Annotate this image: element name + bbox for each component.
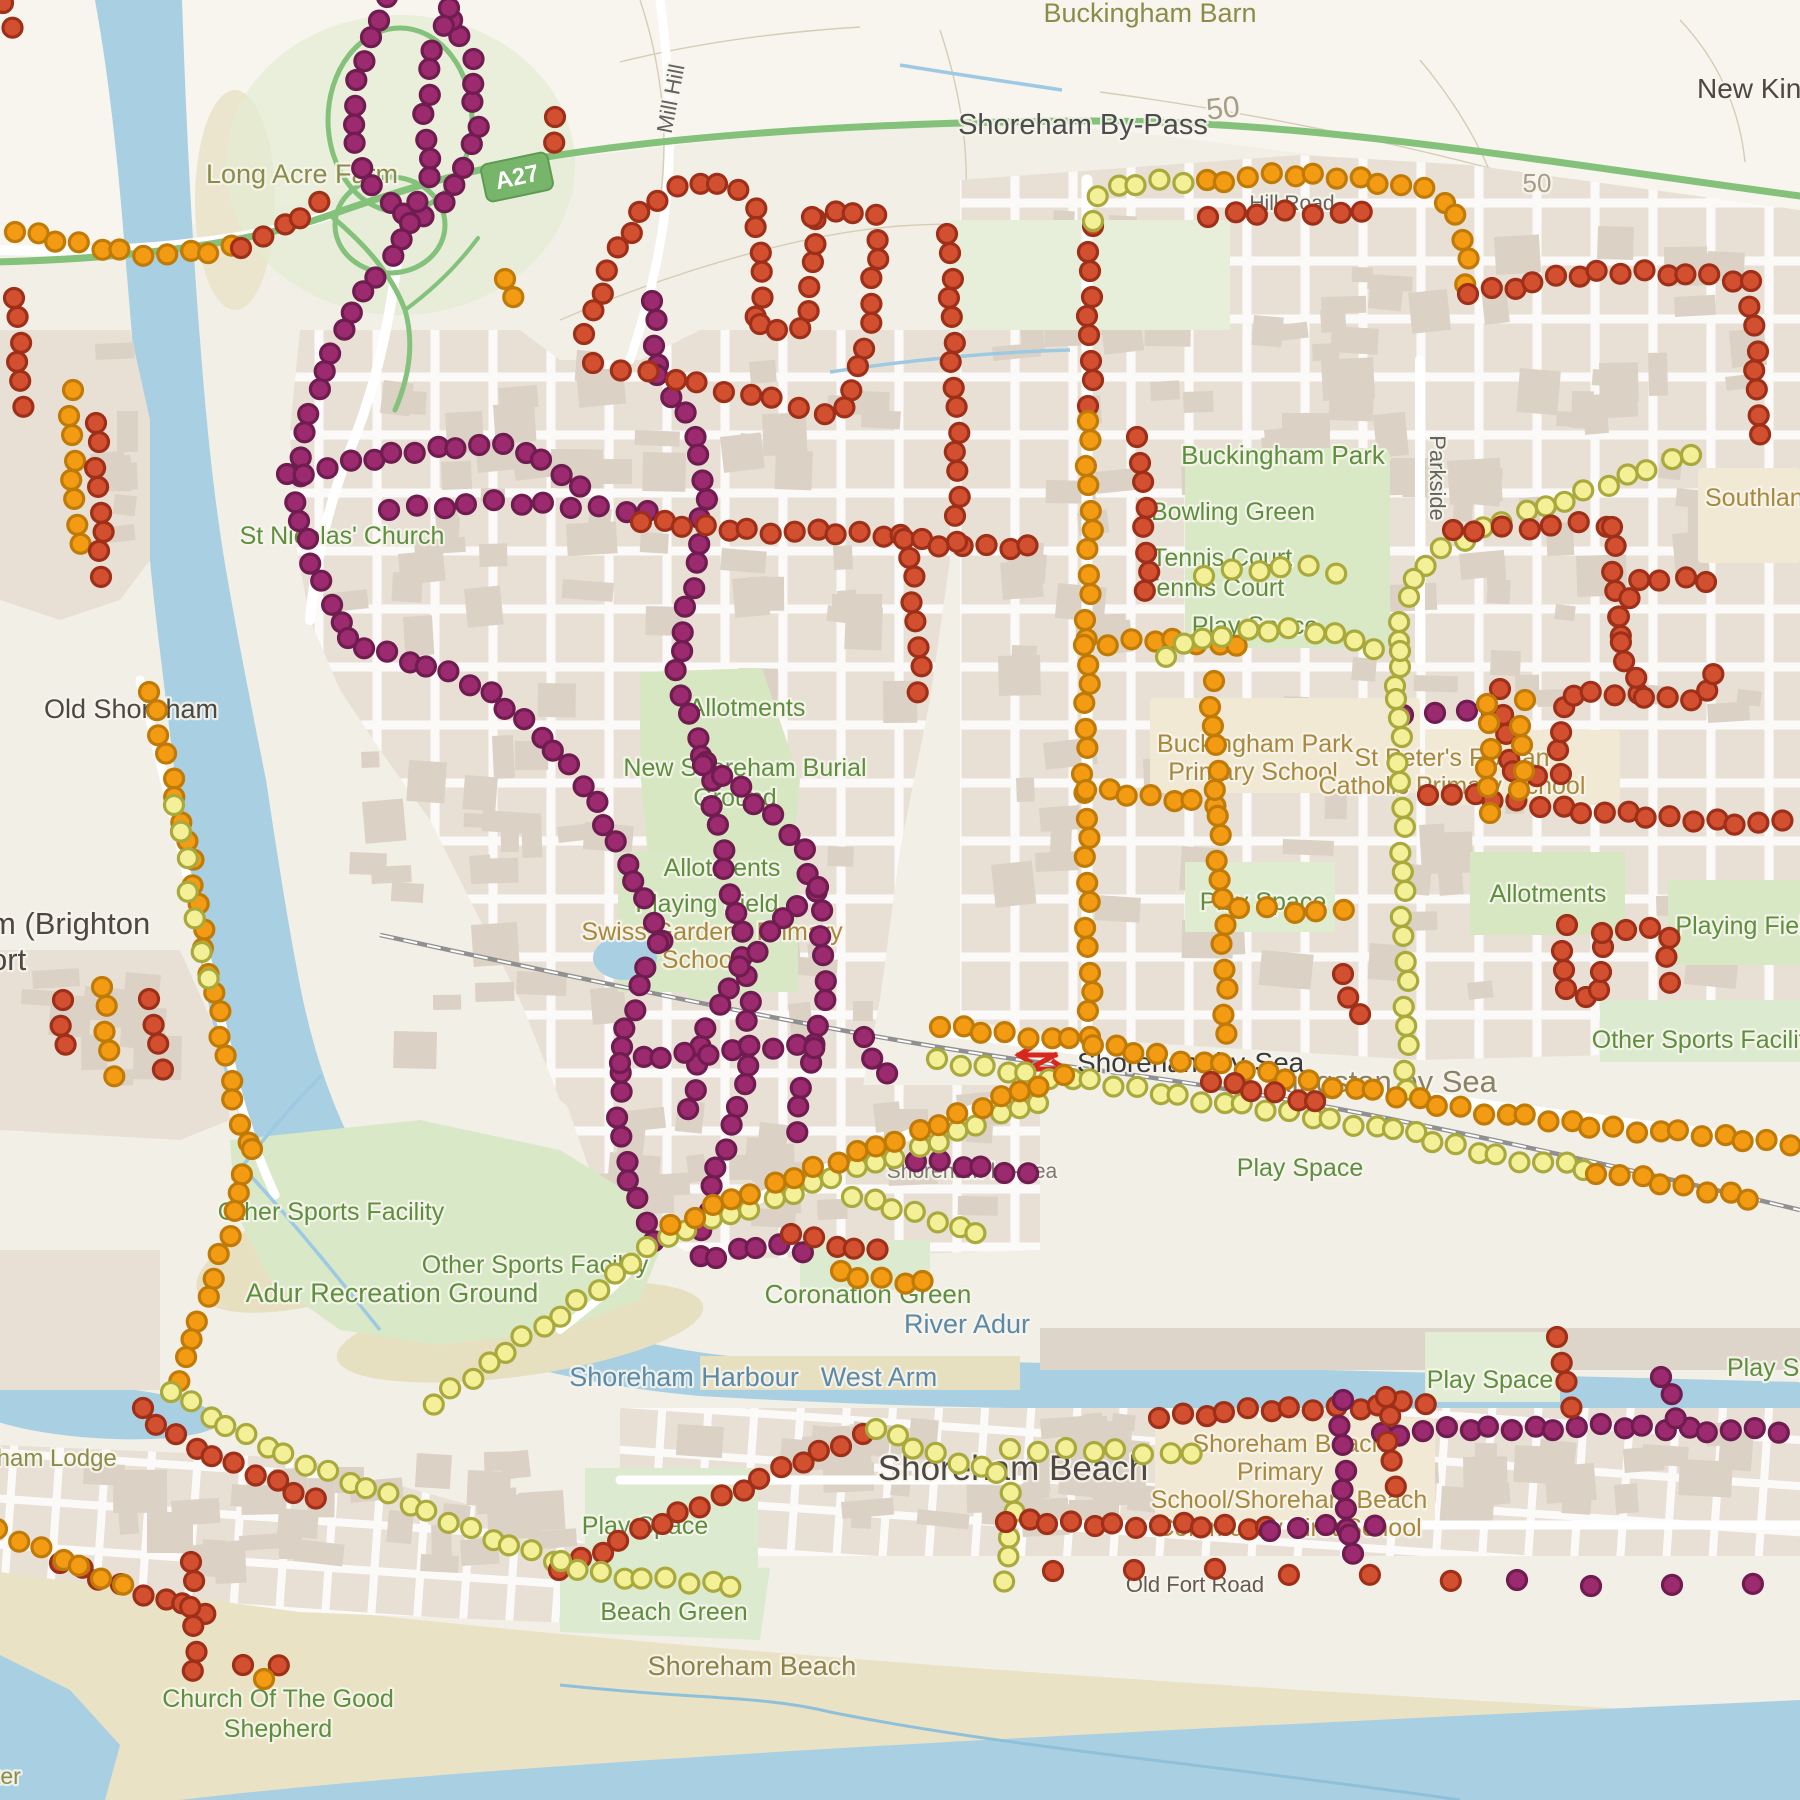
building	[1150, 380, 1180, 401]
survey-dot-r	[284, 1484, 303, 1503]
survey-dot-y	[1400, 587, 1419, 606]
survey-dot-o	[66, 451, 85, 470]
survey-dot-y	[1326, 624, 1345, 643]
survey-dot-y	[1057, 1439, 1076, 1458]
survey-dot-o	[1334, 900, 1353, 919]
survey-dot-y	[843, 1188, 862, 1207]
survey-dot-p	[346, 96, 365, 115]
survey-dot-y	[1393, 798, 1412, 817]
survey-dot-o	[1327, 169, 1346, 188]
survey-dot-o	[204, 1269, 223, 1288]
survey-dot-r	[246, 1466, 265, 1485]
survey-dot-o	[1148, 1044, 1167, 1063]
survey-dot-r	[1150, 1409, 1169, 1428]
survey-dot-r	[803, 253, 822, 272]
survey-dot-r	[672, 517, 691, 536]
survey-dot-y	[1431, 539, 1450, 558]
survey-dot-o	[221, 1227, 240, 1246]
survey-dot-p	[345, 115, 364, 134]
survey-dot-y	[1388, 754, 1407, 773]
building	[676, 1424, 724, 1458]
survey-dot-y	[1192, 1093, 1211, 1112]
survey-dot-y	[1080, 1070, 1099, 1089]
survey-dot-r	[1275, 201, 1294, 220]
survey-dot-r	[1751, 425, 1770, 444]
survey-dot-r	[746, 218, 765, 237]
map-label-green: Buckingham Park	[1181, 440, 1386, 470]
survey-dot-o	[177, 1348, 196, 1367]
building	[1459, 550, 1506, 580]
survey-dot-o	[211, 1002, 230, 1021]
survey-dot-p	[637, 1213, 656, 1232]
building	[744, 1137, 770, 1175]
survey-dot-r	[1676, 265, 1695, 284]
survey-dot-o	[1587, 1165, 1606, 1184]
survey-dot-r	[712, 1486, 731, 1505]
survey-dot-r	[1062, 1512, 1081, 1531]
survey-dot-p	[574, 777, 593, 796]
survey-dot-p	[611, 1054, 630, 1073]
survey-dot-r	[0, 0, 13, 13]
survey-dot-o	[1299, 1071, 1318, 1090]
survey-dot-o	[1387, 1088, 1406, 1107]
survey-dot-p	[686, 428, 705, 447]
survey-dot-r	[1303, 205, 1322, 224]
survey-dot-r	[92, 503, 111, 522]
survey-dot-r	[909, 638, 928, 657]
survey-dot-r	[92, 567, 111, 586]
survey-dot-y	[1387, 690, 1406, 709]
survey-dot-p	[930, 1151, 949, 1170]
survey-dot-r	[90, 541, 109, 560]
survey-dot-o	[1075, 636, 1094, 655]
map-label-water: West Arm	[821, 1362, 938, 1392]
survey-dot-o	[1392, 176, 1411, 195]
survey-dot-o	[885, 1132, 904, 1151]
building	[642, 452, 686, 492]
survey-dot-p	[561, 498, 580, 517]
survey-dot-o	[1211, 825, 1230, 844]
survey-dot-y	[162, 1383, 181, 1402]
survey-dot-r	[1520, 520, 1539, 539]
building	[441, 461, 472, 490]
survey-dot-o	[1674, 1176, 1693, 1195]
survey-dot-y	[296, 1456, 315, 1475]
survey-dot-r	[8, 307, 27, 326]
building	[499, 1450, 531, 1480]
survey-dot-y	[1299, 556, 1318, 575]
survey-dot-p	[1721, 1421, 1740, 1440]
building	[1544, 1463, 1597, 1504]
survey-dot-r	[729, 180, 748, 199]
survey-dot-p	[1333, 1480, 1352, 1499]
survey-dot-y	[1395, 1061, 1414, 1080]
survey-dot-o	[187, 1312, 206, 1331]
survey-dot-r	[1151, 1516, 1170, 1535]
survey-dot-y	[1391, 843, 1410, 862]
survey-dot-y	[1128, 1077, 1147, 1096]
survey-dot-r	[167, 1425, 186, 1444]
survey-dot-o	[1628, 1123, 1647, 1142]
building	[474, 1485, 500, 1515]
survey-dot-p	[454, 158, 473, 177]
survey-dot-o	[97, 996, 116, 1015]
survey-dot-y	[1344, 1116, 1363, 1135]
survey-dot-p	[1478, 1417, 1497, 1436]
survey-dot-y	[1534, 1153, 1553, 1172]
survey-dot-r	[843, 204, 862, 223]
survey-dot-y	[216, 1417, 235, 1436]
survey-dot-r	[1615, 652, 1634, 671]
survey-dot-y	[379, 1484, 398, 1503]
map-label-green: Play Space	[1427, 1366, 1553, 1394]
survey-dot-o	[848, 1142, 867, 1161]
survey-dot-y	[178, 882, 197, 901]
map-viewport[interactable]: A27 Buckingham BarnNew KingShoreham By-P…	[0, 0, 1800, 1800]
survey-dot-p	[679, 1100, 698, 1119]
survey-dot-p	[715, 841, 734, 860]
survey-dot-p	[1366, 1516, 1385, 1535]
building	[403, 615, 434, 656]
building	[361, 751, 380, 768]
survey-dot-p	[809, 878, 828, 897]
survey-dot-r	[1552, 723, 1571, 742]
map-label-green: Coronation Green	[765, 1279, 972, 1309]
survey-dot-p	[362, 176, 381, 195]
survey-dot-r	[942, 307, 961, 326]
building	[1554, 604, 1576, 621]
survey-dot-o	[1210, 870, 1229, 889]
survey-dot-o	[995, 1023, 1014, 1042]
building	[462, 775, 498, 811]
survey-dot-o	[69, 233, 88, 252]
map-label-green: Allotments	[689, 694, 806, 722]
survey-dot-y	[1364, 640, 1383, 659]
survey-dot-r	[575, 325, 594, 344]
survey-dot-r	[809, 1441, 828, 1460]
survey-dot-y	[1394, 926, 1413, 945]
survey-dot-p	[378, 642, 397, 661]
survey-dot-r	[869, 250, 888, 269]
survey-dot-o	[1446, 205, 1465, 224]
survey-dot-r	[747, 199, 766, 218]
survey-dot-o	[1207, 851, 1226, 870]
map-canvas[interactable]: A27 Buckingham BarnNew KingShoreham By-P…	[0, 0, 1800, 1800]
survey-dot-p	[791, 1078, 810, 1097]
survey-dot-o	[149, 726, 168, 745]
survey-dot-p	[1336, 1499, 1355, 1518]
survey-dot-p	[635, 889, 654, 908]
survey-dot-r	[844, 1239, 863, 1258]
survey-dot-p	[711, 995, 730, 1014]
survey-dot-r	[939, 288, 958, 307]
survey-dot-r	[1620, 589, 1639, 608]
survey-dot-o	[64, 381, 83, 400]
survey-dot-p	[1743, 1574, 1762, 1593]
survey-dot-r	[1482, 279, 1501, 298]
survey-dot-y	[1446, 1135, 1465, 1154]
survey-dot-p	[727, 904, 746, 923]
survey-dot-o	[1081, 431, 1100, 450]
building	[113, 494, 137, 516]
survey-dot-o	[46, 232, 65, 251]
survey-dot-p	[702, 797, 721, 816]
survey-dot-o	[243, 1140, 262, 1159]
survey-dot-p	[816, 972, 835, 991]
survey-dot-o	[911, 1121, 930, 1140]
survey-dot-r	[1740, 297, 1759, 316]
survey-dot-o	[105, 1067, 124, 1086]
survey-dot-r	[1247, 205, 1266, 224]
building	[762, 412, 807, 456]
survey-dot-r	[1749, 406, 1768, 425]
survey-dot-p	[689, 445, 708, 464]
survey-dot-o	[1203, 717, 1222, 736]
survey-dot-y	[1279, 619, 1298, 638]
survey-dot-y	[1663, 450, 1682, 469]
survey-dot-r	[1551, 765, 1570, 784]
survey-dot-r	[1557, 1372, 1576, 1391]
survey-dot-o	[1117, 786, 1136, 805]
survey-dot-o	[1230, 899, 1249, 918]
survey-dot-r	[1650, 571, 1669, 590]
survey-dot-o	[199, 244, 218, 263]
survey-dot-r	[929, 537, 948, 556]
survey-dot-r	[593, 284, 612, 303]
survey-dot-y	[1306, 624, 1325, 643]
survey-dot-r	[1595, 803, 1614, 822]
survey-dot-y	[1395, 817, 1414, 836]
building	[1321, 296, 1366, 314]
survey-dot-p	[764, 1039, 783, 1058]
survey-dot-p	[1666, 1409, 1685, 1428]
survey-dot-r	[945, 442, 964, 461]
survey-dot-o	[225, 1201, 244, 1220]
building	[1494, 234, 1541, 275]
survey-dot-o	[100, 1041, 119, 1060]
survey-dot-p	[355, 52, 374, 71]
survey-dot-p	[696, 1019, 715, 1038]
survey-dot-o	[1081, 585, 1100, 604]
survey-dot-p	[995, 1164, 1014, 1183]
survey-dot-r	[1352, 202, 1371, 221]
survey-dot-p	[689, 729, 708, 748]
survey-dot-o	[1481, 804, 1500, 823]
building	[844, 606, 883, 650]
survey-dot-y	[903, 1439, 922, 1458]
survey-dot-p	[335, 320, 354, 339]
survey-dot-y	[1168, 1085, 1187, 1104]
survey-dot-r	[1660, 973, 1679, 992]
survey-dot-o	[1075, 847, 1094, 866]
survey-dot-p	[612, 1082, 631, 1101]
survey-dot-o	[1451, 1097, 1470, 1116]
survey-dot-r	[708, 174, 727, 193]
survey-dot-o	[1698, 1183, 1717, 1202]
survey-dot-p	[1289, 1519, 1308, 1538]
survey-dot-o	[232, 1165, 251, 1184]
survey-dot-p	[323, 595, 342, 614]
building	[464, 585, 504, 627]
survey-dot-y	[1250, 562, 1269, 581]
survey-dot-r	[1605, 686, 1624, 705]
survey-dot-y	[499, 1536, 518, 1555]
survey-dot-o	[722, 1190, 741, 1209]
survey-dot-r	[51, 1016, 70, 1035]
survey-dot-r	[1592, 963, 1611, 982]
survey-dot-y	[721, 1577, 740, 1596]
survey-dot-r	[1226, 203, 1245, 222]
survey-dot-y	[1510, 1153, 1529, 1172]
survey-dot-p	[1317, 1516, 1336, 1535]
survey-dot-p	[1458, 701, 1477, 720]
survey-dot-p	[878, 1064, 897, 1083]
survey-dot-r	[1416, 1395, 1435, 1414]
survey-dot-r	[1724, 272, 1743, 291]
survey-dot-r	[1134, 517, 1153, 536]
survey-dot-y	[882, 1200, 901, 1219]
survey-dot-r	[1382, 1451, 1401, 1470]
survey-dot-o	[829, 1153, 848, 1172]
survey-dot-o	[704, 1195, 723, 1214]
survey-dot-r	[1137, 498, 1156, 517]
survey-dot-p	[814, 946, 833, 965]
survey-dot-p	[1652, 1368, 1671, 1387]
building	[118, 462, 138, 490]
survey-dot-o	[1539, 1112, 1558, 1131]
building	[1599, 362, 1639, 403]
survey-dot-y	[1174, 174, 1193, 193]
survey-dot-y	[356, 1479, 375, 1498]
survey-dot-r	[153, 1060, 172, 1079]
survey-dot-r	[1549, 741, 1568, 760]
survey-dot-r	[761, 524, 780, 543]
building	[827, 846, 854, 867]
survey-dot-y	[1157, 647, 1176, 666]
survey-dot-o	[1206, 735, 1225, 754]
survey-dot-p	[690, 535, 709, 554]
survey-dot-p	[693, 471, 712, 490]
survey-dot-y	[1161, 1444, 1180, 1463]
survey-dot-p	[382, 443, 401, 462]
survey-dot-r	[1745, 361, 1764, 380]
survey-dot-p	[1413, 1422, 1432, 1441]
survey-dot-p	[416, 657, 435, 676]
survey-dot-r	[611, 361, 630, 380]
survey-dot-p	[482, 683, 501, 702]
survey-dot-r	[1552, 1353, 1571, 1372]
survey-dot-r	[941, 352, 960, 371]
survey-dot-r	[1135, 581, 1154, 600]
survey-dot-p	[676, 403, 695, 422]
survey-dot-o	[913, 1272, 932, 1291]
survey-dot-o	[10, 1532, 29, 1551]
survey-dot-r	[290, 209, 309, 228]
survey-dot-o	[216, 1046, 235, 1065]
survey-dot-r	[800, 278, 819, 297]
survey-dot-p	[1663, 1575, 1682, 1594]
survey-dot-p	[1426, 703, 1445, 722]
survey-dot-r	[1617, 921, 1636, 940]
survey-dot-p	[730, 957, 749, 976]
building	[200, 1539, 227, 1578]
survey-dot-r	[1558, 916, 1577, 935]
building	[391, 882, 424, 903]
survey-dot-r	[1773, 811, 1792, 830]
survey-dot-o	[1055, 1066, 1074, 1085]
survey-dot-r	[631, 1519, 650, 1538]
survey-dot-p	[347, 71, 366, 90]
survey-dot-o	[740, 1185, 759, 1204]
survey-dot-r	[906, 612, 925, 631]
survey-dot-p	[1261, 1522, 1280, 1541]
survey-dot-r	[945, 333, 964, 352]
survey-dot-o	[1479, 778, 1498, 797]
map-label-school: Shoreham Beach	[1192, 1430, 1385, 1458]
survey-dot-p	[722, 1115, 741, 1134]
survey-dot-r	[1553, 942, 1572, 961]
survey-dot-o	[866, 1137, 885, 1156]
map-label-school: Buckingham Park	[1157, 730, 1353, 758]
survey-dot-p	[813, 901, 832, 920]
map-label-green: St Nicolas' Church	[240, 522, 445, 550]
survey-dot-r	[89, 477, 108, 496]
survey-dot-o	[158, 245, 177, 264]
survey-dot-r	[1242, 1082, 1261, 1101]
survey-dot-r	[1215, 1515, 1234, 1534]
survey-dot-r	[868, 1240, 887, 1259]
building	[475, 982, 515, 1002]
survey-dot-r	[948, 461, 967, 480]
building	[1678, 1459, 1733, 1498]
building	[393, 1031, 437, 1069]
survey-dot-y	[1256, 1101, 1275, 1120]
survey-dot-r	[1634, 688, 1653, 707]
survey-dot-p	[1582, 1577, 1601, 1596]
survey-dot-p	[675, 1043, 694, 1062]
survey-dot-y	[606, 1264, 625, 1283]
survey-dot-p	[1632, 1416, 1651, 1435]
survey-dot-p	[469, 117, 488, 136]
survey-dot-p	[1330, 1417, 1349, 1436]
survey-dot-o	[0, 1520, 7, 1539]
survey-dot-r	[8, 352, 27, 371]
map-label-green: Playing Field	[1675, 912, 1800, 940]
survey-dot-r	[806, 235, 825, 254]
survey-dot-y	[1404, 569, 1423, 588]
survey-dot-r	[1199, 208, 1218, 227]
survey-dot-r	[1137, 543, 1156, 562]
survey-dot-p	[606, 832, 625, 851]
survey-dot-r	[1587, 261, 1606, 280]
building	[1447, 458, 1503, 505]
survey-dot-p	[315, 362, 334, 381]
survey-dot-r	[1214, 1403, 1233, 1422]
survey-dot-r	[750, 1469, 769, 1488]
survey-dot-r	[737, 519, 756, 538]
survey-dot-r	[902, 593, 921, 612]
survey-dot-p	[713, 766, 732, 785]
survey-dot-p	[714, 859, 733, 878]
survey-dot-p	[795, 840, 814, 859]
survey-dot-r	[789, 398, 808, 417]
survey-dot-y	[480, 1353, 499, 1372]
survey-dot-o	[1285, 903, 1304, 922]
survey-dot-o	[1079, 566, 1098, 585]
survey-dot-o	[1078, 540, 1097, 559]
survey-dot-p	[697, 490, 716, 509]
survey-dot-o	[1083, 1036, 1102, 1055]
